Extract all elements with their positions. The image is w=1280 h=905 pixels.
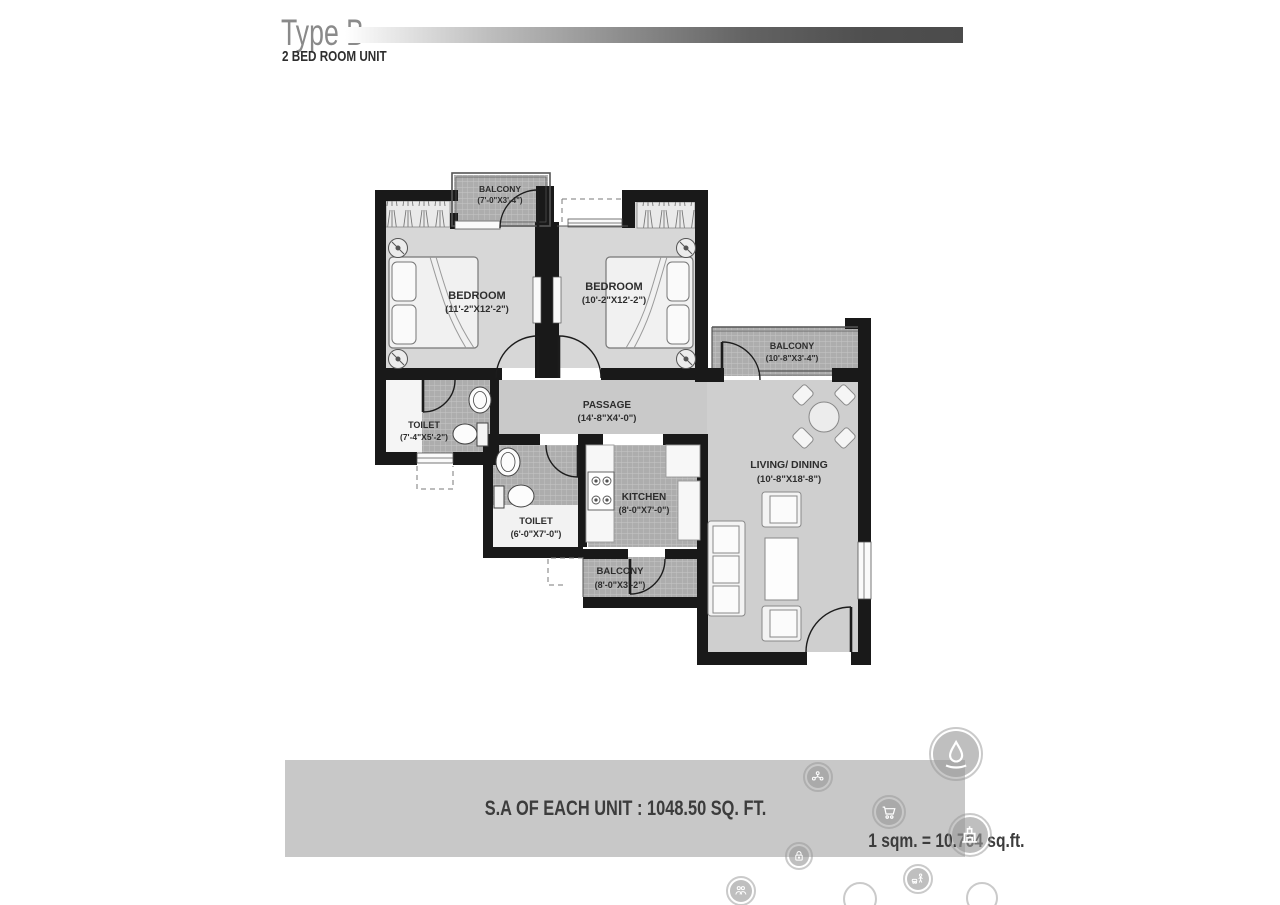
living-dining-dims: (10'-8"X18'-8") [757, 474, 821, 485]
unit-area-text: S.A OF EACH UNIT : 1048.50 SQ. FT. [484, 797, 766, 821]
toilet-left-label: TOILET [408, 420, 440, 430]
kitchen-label: KITCHEN [622, 492, 666, 503]
water-drop-icon [929, 727, 983, 781]
area-banner: S.A OF EACH UNIT : 1048.50 SQ. FT. [285, 760, 965, 857]
toilet-left-dims: (7'-4"X5'-2") [400, 432, 448, 442]
people-icon [726, 876, 756, 905]
balcony-top-label: BALCONY [479, 184, 521, 194]
living-dining-label: LIVING/ DINING [750, 459, 828, 471]
brochure-page: Type B 2 BED ROOM UNIT [0, 0, 1280, 905]
balcony-top-dims: (7'-0"X3'-4") [477, 196, 523, 205]
bedroom-left-label: BEDROOM [448, 290, 505, 302]
monument-icon [948, 813, 992, 857]
toilet-center-label: TOILET [519, 516, 553, 527]
stove-icon [588, 472, 614, 510]
bedroom-right-label: BEDROOM [585, 281, 642, 293]
padlock-icon [785, 842, 813, 870]
passage-label: PASSAGE [583, 400, 631, 411]
community-icon [803, 762, 833, 792]
balcony-bottom-label: BALCONY [597, 566, 645, 577]
balcony-right-dims: (10'-8"X3'-4") [766, 353, 819, 363]
play-area-icon [903, 864, 933, 894]
kitchen-dims: (8'-0"X7'-0") [619, 505, 670, 515]
bedroom-right-dims: (10'-2"X12'-2") [582, 295, 646, 306]
shopping-cart-icon [872, 795, 906, 829]
bedroom-left-dims: (11'-2"X12'-2") [445, 304, 509, 315]
toilet-center-dims: (6'-0"X7'-0") [511, 529, 562, 539]
passage-dims: (14'-8"X4'-0") [578, 413, 637, 424]
balcony-right-label: BALCONY [770, 341, 815, 351]
bed-left [389, 257, 478, 348]
balcony-bottom-dims: (8'-0"X3'-2") [595, 580, 646, 590]
